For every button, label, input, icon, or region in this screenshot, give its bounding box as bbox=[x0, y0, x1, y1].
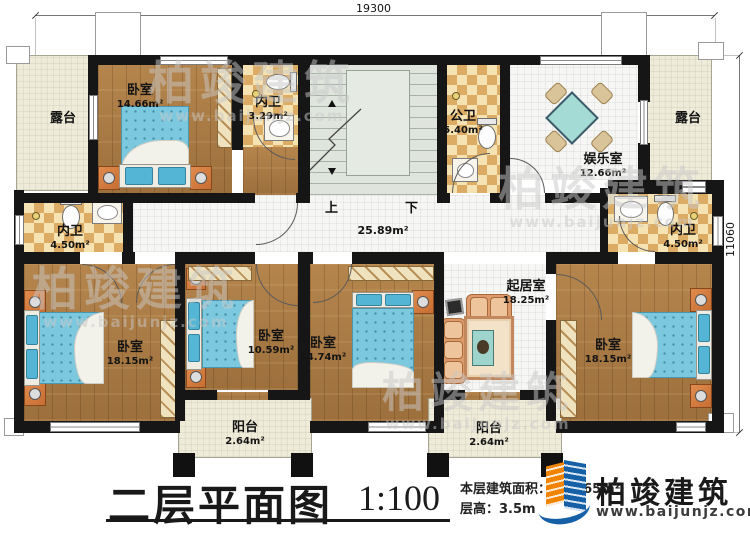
wall bbox=[434, 264, 444, 421]
a: 4.50m² bbox=[38, 240, 102, 251]
n: 公卫 bbox=[432, 110, 494, 125]
fur bbox=[444, 341, 463, 359]
nightstand bbox=[412, 290, 434, 314]
deco bbox=[6, 46, 30, 64]
wall bbox=[298, 55, 310, 195]
wall bbox=[546, 264, 556, 274]
window-opening bbox=[368, 422, 426, 432]
balcony-column bbox=[427, 453, 449, 477]
pillow bbox=[698, 346, 710, 374]
wall bbox=[608, 252, 618, 264]
floor bbox=[217, 392, 268, 400]
deco bbox=[698, 42, 724, 60]
n: 内卫 bbox=[650, 224, 716, 239]
wall bbox=[123, 193, 133, 264]
a: 14.66m² bbox=[105, 99, 175, 110]
window-opening bbox=[89, 95, 98, 140]
wall bbox=[180, 390, 217, 400]
plant bbox=[477, 340, 489, 354]
faucet bbox=[690, 212, 698, 220]
nightstand bbox=[690, 288, 712, 312]
tick bbox=[736, 429, 743, 436]
window-opening bbox=[676, 422, 706, 432]
pillow bbox=[125, 167, 153, 185]
room-label-hall: 25.89m² bbox=[353, 225, 413, 237]
pillow bbox=[698, 314, 710, 342]
title-underline bbox=[106, 519, 450, 522]
n: 露台 bbox=[38, 112, 88, 127]
a: 18.15m² bbox=[573, 354, 643, 365]
room-label-bath-right: 内卫4.50m² bbox=[650, 224, 716, 250]
fur bbox=[444, 361, 463, 379]
room-label-balcony-right: 阳台2.64m² bbox=[456, 422, 522, 448]
wall bbox=[608, 180, 724, 194]
wall bbox=[638, 55, 650, 102]
wardrobe bbox=[217, 68, 232, 148]
wall bbox=[175, 252, 255, 264]
tv bbox=[445, 298, 464, 316]
room-label-bath-top: 内卫3.29m² bbox=[235, 96, 301, 122]
n: 阳台 bbox=[456, 422, 522, 437]
stairs-down-label: 下 bbox=[405, 197, 418, 216]
wall bbox=[14, 193, 255, 203]
window-opening bbox=[15, 215, 24, 245]
window-opening bbox=[160, 56, 228, 65]
n: 露台 bbox=[663, 112, 713, 127]
wardrobe bbox=[348, 266, 434, 281]
n: 起居室 bbox=[490, 280, 562, 295]
dimension-line-right bbox=[739, 55, 740, 433]
stairs-up-label: 上 bbox=[325, 197, 338, 216]
a: 18.15m² bbox=[95, 356, 165, 367]
floor bbox=[465, 392, 520, 400]
company-logo: 柏竣建筑 www.baijunjz.com bbox=[538, 462, 748, 532]
n: 内卫 bbox=[38, 225, 102, 240]
stair-arrow-up-icon bbox=[328, 100, 336, 107]
room-label-bedroom-mid: 卧室14.74m² bbox=[288, 337, 358, 363]
n: 娱乐室 bbox=[567, 153, 639, 168]
room-label-terrace-left: 露台 bbox=[38, 112, 88, 127]
stair-break-line bbox=[305, 105, 365, 177]
a: 25.89m² bbox=[353, 225, 413, 237]
a: 2.64m² bbox=[212, 436, 278, 447]
pillow bbox=[385, 294, 411, 306]
room-label-bedroom-bottom-left: 卧室18.15m² bbox=[95, 341, 165, 367]
n: 卧室 bbox=[288, 337, 358, 352]
sink bbox=[92, 200, 122, 224]
stair-arrow-down-icon bbox=[328, 168, 336, 175]
room-label-living: 起居室18.25m² bbox=[490, 280, 562, 306]
wardrobe bbox=[160, 320, 176, 418]
room-label-bedroom-top: 卧室14.66m² bbox=[105, 84, 175, 110]
fur bbox=[654, 195, 676, 202]
wall bbox=[546, 320, 556, 421]
window-opening bbox=[540, 56, 622, 65]
pillow bbox=[188, 302, 200, 330]
dimension-top: 19300 bbox=[356, 2, 391, 15]
fur bbox=[444, 321, 463, 339]
wall bbox=[638, 143, 650, 183]
fur bbox=[290, 72, 297, 92]
nightstand bbox=[98, 166, 120, 190]
wardrobe bbox=[188, 266, 252, 281]
chimney bbox=[601, 12, 647, 57]
wall bbox=[600, 188, 608, 264]
a: 18.25m² bbox=[490, 295, 562, 306]
faucet bbox=[32, 212, 40, 220]
pillow bbox=[26, 315, 38, 345]
polyline bbox=[307, 109, 361, 173]
n: 卧室 bbox=[95, 341, 165, 356]
wall bbox=[298, 264, 310, 390]
a: 14.74m² bbox=[288, 352, 358, 363]
pillow bbox=[188, 334, 200, 362]
a: 5.40m² bbox=[432, 125, 494, 136]
room-label-entertainment: 娱乐室12.66m² bbox=[567, 153, 639, 179]
floor-plan: 19300 11060 bbox=[0, 0, 750, 535]
toilet bbox=[266, 74, 290, 90]
a: 3.29m² bbox=[235, 111, 301, 122]
n: 内卫 bbox=[235, 96, 301, 111]
logo-website: www.baijunjz.com bbox=[596, 504, 750, 520]
n: 卧室 bbox=[573, 339, 643, 354]
room-label-public-bath: 公卫5.40m² bbox=[432, 110, 494, 136]
wall bbox=[298, 252, 313, 264]
wall bbox=[175, 264, 185, 421]
faucet bbox=[452, 92, 460, 100]
pillow bbox=[158, 167, 186, 185]
nightstand bbox=[690, 384, 712, 408]
dimension-right: 11060 bbox=[724, 222, 737, 257]
a: 2.64m² bbox=[456, 437, 522, 448]
wall bbox=[500, 55, 510, 195]
n: 阳台 bbox=[212, 421, 278, 436]
wall bbox=[546, 252, 608, 264]
wall bbox=[545, 193, 608, 203]
window-opening bbox=[682, 181, 706, 193]
nightstand bbox=[190, 166, 212, 190]
room-label-bath-left: 内卫4.50m² bbox=[38, 225, 102, 251]
scale-label: 1:100 bbox=[358, 477, 440, 519]
extline bbox=[35, 18, 36, 55]
wall bbox=[268, 390, 310, 400]
pillow bbox=[356, 294, 382, 306]
fur bbox=[352, 362, 414, 388]
terrace-door bbox=[640, 100, 648, 145]
wall bbox=[352, 252, 444, 264]
a: 12.66m² bbox=[567, 168, 639, 179]
a: 4.50m² bbox=[650, 239, 716, 250]
window-opening bbox=[50, 422, 140, 432]
wardrobe bbox=[560, 320, 577, 418]
room-label-terrace-right: 露台 bbox=[663, 112, 713, 127]
chimney bbox=[95, 12, 141, 57]
room-label-balcony-left: 阳台2.64m² bbox=[212, 421, 278, 447]
page-title: 二层平面图 bbox=[108, 472, 333, 533]
room-label-bedroom-bottom-right: 卧室18.15m² bbox=[573, 339, 643, 365]
pillow bbox=[26, 349, 38, 379]
n: 卧室 bbox=[105, 84, 175, 99]
